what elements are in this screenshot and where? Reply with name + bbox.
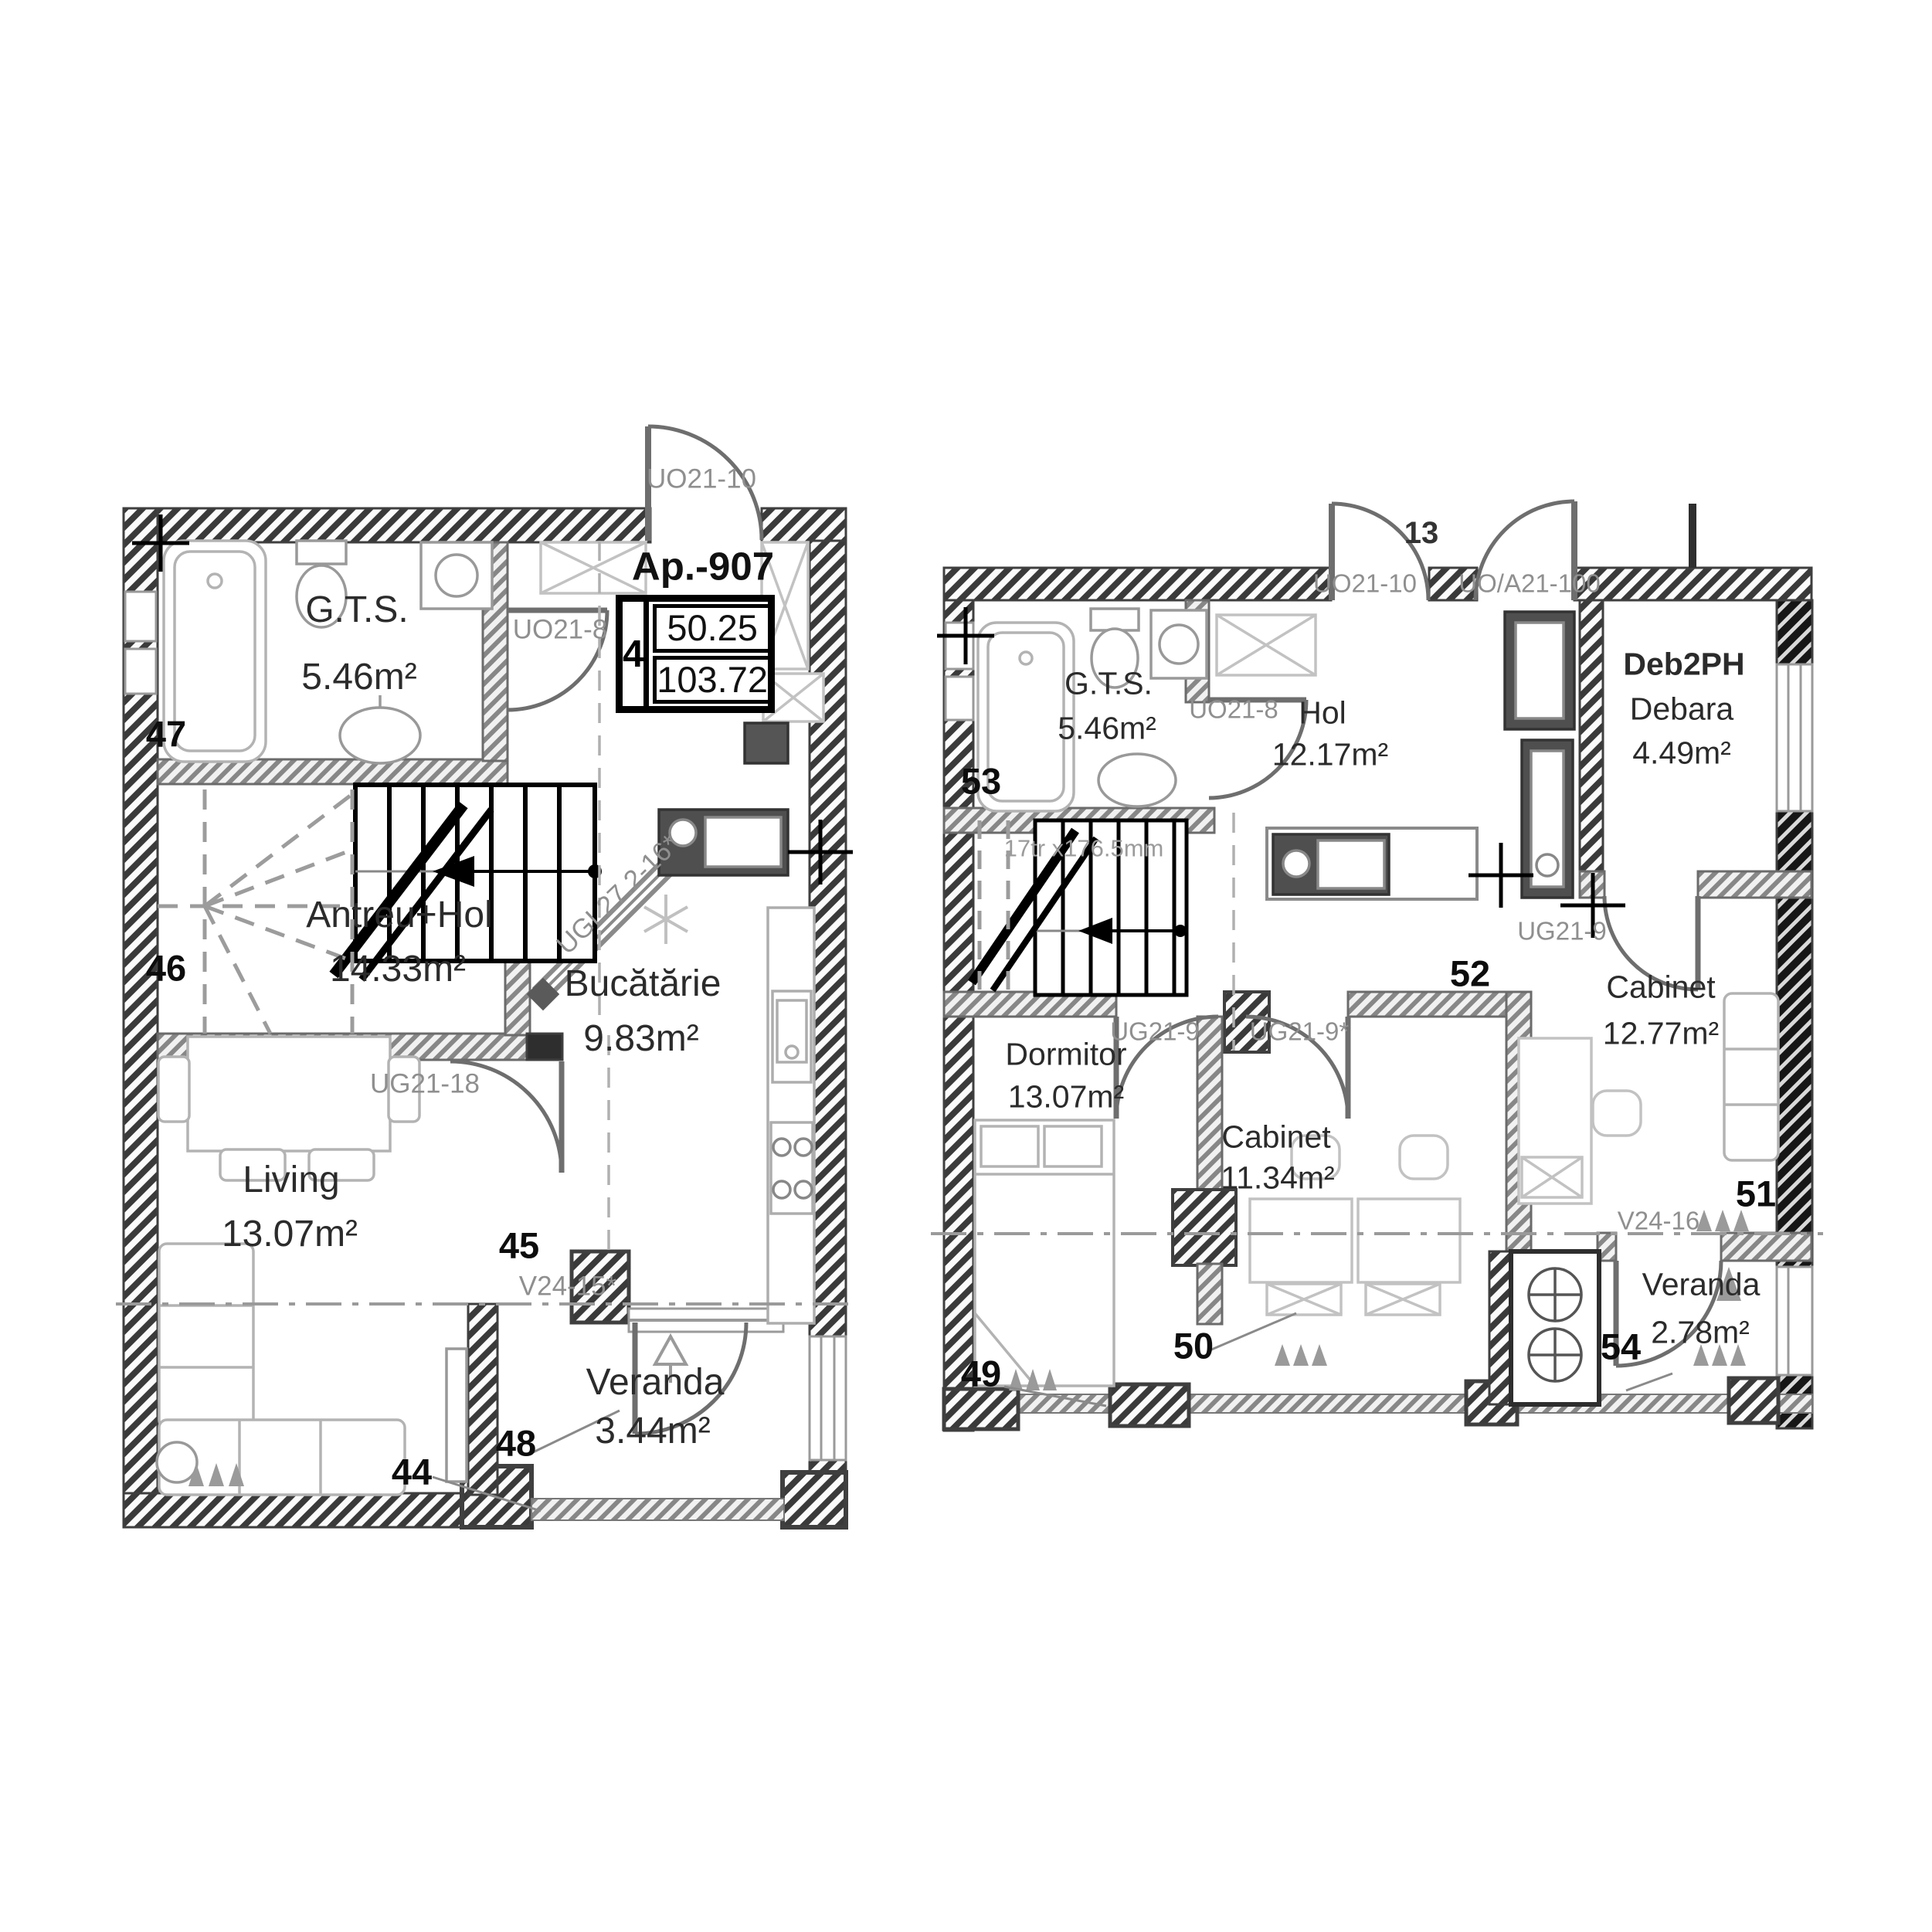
room-hol-area: 12.17m² <box>1272 739 1388 771</box>
room-debara-name: Debara <box>1630 694 1733 725</box>
room-living-name: Living <box>243 1162 339 1199</box>
door-label-ug21-9-top: UG21-9 <box>1517 918 1607 944</box>
door-label-entry-right-upper: UO/A21-100 <box>1458 571 1600 596</box>
room-debara-area: 4.49m² <box>1632 738 1731 769</box>
room-dormitor-area: 13.07m² <box>1008 1081 1124 1113</box>
room-antreu-name: Antreu+Hol <box>306 897 492 934</box>
marker-46: 46 <box>146 950 186 986</box>
door-label-ug21-9-right: UG21-9* <box>1250 1019 1349 1044</box>
room-dormitor-name: Dormitor <box>1005 1039 1126 1071</box>
marker-44: 44 <box>392 1454 432 1490</box>
room-cabinet1-area: 11.34m² <box>1221 1163 1334 1194</box>
stairs-label: 17tr x176.5mm <box>1004 837 1164 861</box>
marker-47: 47 <box>146 716 186 752</box>
marker-45: 45 <box>499 1227 539 1264</box>
room-gts-upper-name: G.T.S. <box>1064 668 1153 700</box>
marker-53: 53 <box>961 763 1001 800</box>
room-living-area: 13.07m² <box>222 1216 358 1253</box>
room-bucatarie-name: Bucătărie <box>565 966 722 1003</box>
room-veranda-upper-area: 2.78m² <box>1651 1317 1750 1349</box>
apartment-info-box: 4 50.25 103.72 <box>616 595 775 713</box>
marker-49: 49 <box>961 1356 1001 1392</box>
floorplan-canvas: G.T.S. 5.46m² 47 Ap.-907 UO21-10 UO21-8 … <box>0 0 1932 1932</box>
room-bucatarie-area: 9.83m² <box>583 1020 698 1058</box>
info-area-useful: 50.25 <box>653 604 772 653</box>
marker-52: 52 <box>1450 956 1490 992</box>
room-gts-upper-area: 5.46m² <box>1058 713 1156 745</box>
door-label-entry-lower: UO21-10 <box>647 466 756 493</box>
room-debara-code: Deb2PH <box>1623 649 1744 681</box>
door-label-ug21-18: UG21-18 <box>370 1071 480 1098</box>
room-cabinet1-name: Cabinet <box>1221 1122 1330 1153</box>
marker-48: 48 <box>496 1425 536 1462</box>
marker-51: 51 <box>1736 1176 1776 1212</box>
info-area-total: 103.72 <box>653 656 772 705</box>
room-veranda-lower-area: 3.44m² <box>595 1413 710 1450</box>
room-gts-lower-name: G.T.S. <box>305 592 408 629</box>
window-label-v24-16: V24-16 <box>1618 1208 1699 1234</box>
room-hol-name: Hol <box>1299 698 1346 729</box>
plan-graphics <box>0 0 1932 1932</box>
room-veranda-lower-name: Veranda <box>586 1364 725 1401</box>
marker-54: 54 <box>1601 1329 1641 1365</box>
window-label-v24-15: V24-15* <box>519 1273 616 1300</box>
door-label-ug21-9-left: UG21-9 <box>1110 1019 1200 1044</box>
door-number-13: 13 <box>1404 518 1439 548</box>
door-label-entry-left-upper: UO21-10 <box>1313 571 1417 596</box>
apartment-title: Ap.-907 <box>632 547 774 586</box>
door-label-bath-upper: UO21-8 <box>1189 697 1278 722</box>
room-veranda-upper-name: Veranda <box>1642 1269 1761 1301</box>
room-antreu-area: 14.33m² <box>330 951 466 988</box>
marker-50: 50 <box>1173 1328 1214 1364</box>
room-cabinet2-area: 12.77m² <box>1603 1018 1719 1050</box>
room-cabinet2-name: Cabinet <box>1606 972 1715 1003</box>
info-rooms-count: 4 <box>623 602 649 706</box>
door-label-bath-lower: UO21-8 <box>513 616 608 643</box>
room-gts-lower-area: 5.46m² <box>301 659 416 696</box>
